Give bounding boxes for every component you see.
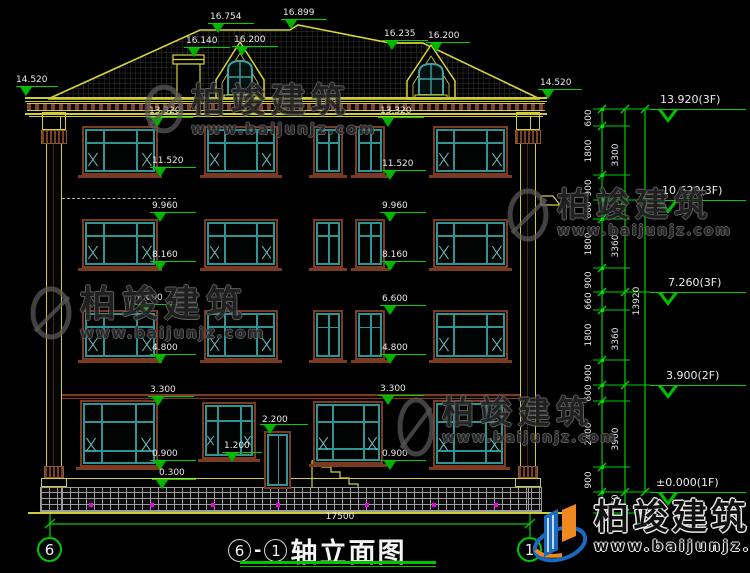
level-flag-triangle [154, 213, 166, 222]
window-transom [318, 235, 338, 237]
chain-dim-text: 660 [584, 292, 594, 309]
brand-logo-icon [532, 500, 588, 566]
watermark-swirl-icon [505, 188, 551, 242]
level-flag-triangle [384, 355, 396, 364]
dimension-label: 8.160 [382, 250, 408, 260]
cad-elevation-drawing: 6 - 1 轴立面图 6 1 柏竣建筑 www.baijunjz.com 柏竣建… [0, 0, 750, 573]
window-transom [318, 142, 338, 144]
level-mark-label: ±0.000(1F) [656, 476, 719, 489]
window-mullion [103, 224, 105, 263]
level-flag-triangle [430, 43, 442, 52]
level-mark-triangle-inner [662, 110, 674, 118]
chain-node [601, 466, 604, 469]
level-flag-triangle [384, 213, 396, 222]
window-sill [309, 268, 347, 271]
window-transom [209, 142, 273, 144]
pilaster-capital-left [41, 130, 67, 144]
dimension-label: 16.235 [384, 29, 416, 39]
title-text: 轴立面图 [290, 531, 406, 570]
window-mullion [453, 224, 455, 263]
window-mullion [453, 315, 455, 355]
chain-dim-text: 600 [584, 109, 594, 126]
level-mark-label: 7.260(3F) [668, 276, 721, 289]
window-sill [78, 360, 162, 363]
dimension-label: 6.600 [382, 294, 408, 304]
window [204, 219, 278, 268]
window-mullion [103, 131, 105, 170]
window-sill [200, 268, 282, 271]
chain-node [601, 309, 604, 312]
axis-bubble-6: 6 [37, 537, 62, 562]
watermark: 柏竣建筑 www.baijunjz.com [396, 396, 617, 458]
plinth-band [61, 487, 529, 512]
plinth-dot [365, 503, 369, 507]
chain-node [601, 267, 604, 270]
window-sill [309, 360, 347, 363]
window-sill [429, 467, 510, 470]
dimension-label: 3.300 [150, 385, 176, 395]
window-mullion [486, 224, 488, 263]
dimension-label: 4.800 [152, 343, 178, 353]
chain-node [601, 174, 604, 177]
window-frame [83, 403, 155, 464]
window-mullion [224, 224, 226, 263]
chain-dim-text: 900 [584, 364, 594, 381]
dimension-label: 16.899 [283, 8, 315, 18]
window-mullion [370, 224, 372, 263]
level-flag-triangle [154, 262, 166, 271]
window-transom [360, 142, 380, 144]
level-flag-triangle [156, 480, 168, 489]
window [313, 219, 343, 268]
plinth-dot [150, 503, 154, 507]
window-mullion [332, 406, 334, 459]
level-flag-triangle [152, 397, 164, 406]
level-flag-triangle [384, 171, 396, 180]
window-transom [360, 235, 380, 237]
window-frame [436, 222, 505, 265]
window-transom [207, 420, 251, 422]
chain-dim-text: 1800 [584, 139, 594, 162]
window [433, 126, 508, 175]
window-transom [318, 327, 338, 329]
plinth-dot [211, 503, 215, 507]
window-mullion [135, 405, 137, 462]
dimension-label: 9.960 [152, 201, 178, 211]
hidden-roofline [57, 198, 176, 199]
level-flag-triangle [542, 90, 554, 99]
level-mark-triangle-inner [662, 386, 674, 394]
window-transom [87, 235, 153, 237]
chain-dim-text: 3360 [611, 327, 621, 350]
level-flag-triangle [384, 262, 396, 271]
plinth-dot [494, 503, 498, 507]
watermark-swirl-icon [143, 84, 185, 134]
chain-node [601, 491, 604, 494]
window-mullion [363, 406, 365, 459]
brand-logo: 柏竣建筑 www.baijunjz.com [532, 500, 750, 566]
window-frame [436, 129, 505, 172]
dimension-label: 14.520 [16, 75, 48, 85]
window-mullion [101, 405, 103, 462]
level-flag-triangle [20, 87, 32, 96]
chain-dim-text: 900 [584, 471, 594, 488]
chain-node [601, 125, 604, 128]
dimension-label: 16.140 [186, 36, 218, 46]
window [82, 219, 158, 268]
dimension-label: 16.200 [234, 35, 266, 45]
chain-node [601, 359, 604, 362]
dimension-label: 1.200 [224, 441, 250, 451]
watermark: 柏竣建筑 www.baijunjz.com [505, 188, 732, 242]
level-mark-label: 13.920(3F) [660, 93, 720, 106]
pilaster-capital-right [515, 130, 541, 144]
level-flag-triangle [384, 461, 396, 470]
title-axis-end: 1 [264, 539, 287, 562]
window-mullion [370, 315, 372, 355]
window [313, 310, 343, 360]
level-flag-triangle [154, 168, 166, 177]
chain-dim-text: 3300 [611, 143, 621, 166]
window [313, 401, 383, 464]
level-mark-triangle-inner [662, 293, 674, 301]
level-flag-triangle [285, 20, 297, 29]
window [355, 310, 385, 360]
level-flag-triangle [386, 41, 398, 50]
window-mullion [453, 131, 455, 170]
window-mullion [136, 131, 138, 170]
window-sill [429, 268, 512, 271]
chain-node [601, 108, 604, 111]
window-transom [438, 142, 503, 144]
window-mullion [328, 224, 330, 263]
window-sill [78, 268, 162, 271]
dimension-label: 17500 [303, 512, 377, 522]
ground-line [28, 512, 576, 514]
chain-node [601, 291, 604, 294]
window-transom [318, 421, 378, 423]
dimension-label: 3.300 [380, 384, 406, 394]
watermark-swirl-icon [396, 396, 436, 458]
level-flag-triangle [226, 453, 238, 462]
plinth-dot [432, 503, 436, 507]
window-mullion [256, 224, 258, 263]
window [433, 219, 508, 268]
window-sill [200, 360, 282, 363]
dimension-label: 14.520 [540, 78, 572, 88]
drawing-title: 6 - 1 轴立面图 [228, 531, 406, 570]
dimension-label: 13.320 [380, 106, 412, 116]
plinth-dot [89, 503, 93, 507]
entry-door [264, 431, 291, 489]
dimension-label: 9.960 [382, 201, 408, 211]
title-underline [240, 561, 436, 564]
level-flag-triangle [264, 425, 276, 434]
dimension-label: 16.200 [428, 31, 460, 41]
level-flag-triangle [212, 24, 224, 33]
dimension-label: 16.754 [210, 12, 242, 22]
level-flag-triangle [154, 355, 166, 364]
window-sill [429, 175, 512, 178]
window-mullion [486, 131, 488, 170]
window-sill [429, 360, 512, 363]
window-transom [438, 235, 503, 237]
window-frame [207, 222, 275, 265]
title-axis-start: 6 [228, 539, 251, 562]
window-mullion [136, 224, 138, 263]
window-transom [85, 421, 153, 423]
window-frame [316, 404, 380, 461]
window-sill [78, 175, 162, 178]
window-sill [309, 464, 387, 467]
window-frame [85, 222, 155, 265]
watermark: 柏竣建筑 www.baijunjz.com [143, 84, 376, 138]
level-mark-label: 3.900(2F) [666, 369, 719, 382]
dimension-label: 4.800 [382, 343, 408, 353]
dimension-label: 2.200 [262, 415, 288, 425]
dimension-label: 0.300 [159, 468, 185, 478]
dimension-label: 0.900 [152, 449, 178, 459]
window [433, 310, 508, 360]
level-flag-triangle [382, 118, 394, 127]
watermark: 柏竣建筑 www.baijunjz.com [28, 286, 265, 342]
level-flag-triangle [382, 396, 394, 405]
chain-dim-text: 1800 [584, 324, 594, 347]
watermark-swirl-icon [28, 286, 74, 340]
window-transom [438, 326, 503, 328]
dimension-label: 8.160 [152, 250, 178, 260]
window-transom [360, 327, 380, 329]
window-mullion [328, 315, 330, 355]
window-mullion [217, 407, 219, 454]
dimension-label: 11.520 [152, 156, 184, 166]
window-transom [209, 235, 273, 237]
level-flag-triangle [188, 48, 200, 57]
window-sill [200, 175, 282, 178]
window-sill [309, 175, 347, 178]
window-sill [76, 467, 162, 470]
chain-dim-text: 900 [584, 271, 594, 288]
level-flag-triangle [384, 306, 396, 315]
window-mullion [486, 315, 488, 355]
chain-node [601, 384, 604, 387]
dimension-label: 11.520 [382, 159, 414, 169]
window [80, 400, 158, 467]
chain-total-text: 13920 [632, 286, 642, 315]
level-flag-triangle [236, 47, 248, 56]
plinth-dot [276, 503, 280, 507]
window-transom [87, 142, 153, 144]
